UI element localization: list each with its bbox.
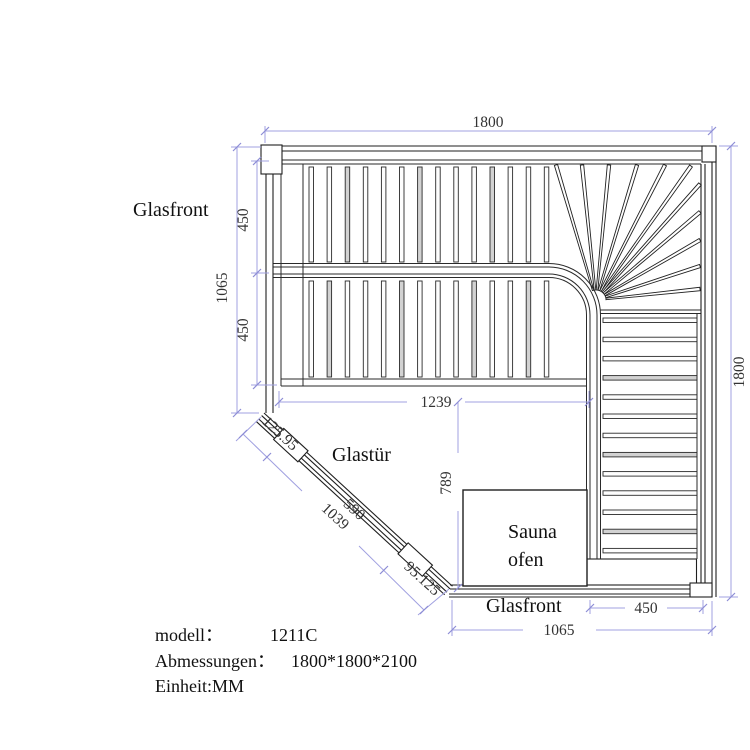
corner-fan-slats (554, 164, 701, 300)
bottom-right-corner-post (690, 583, 712, 597)
upper-bench-slats (309, 167, 549, 262)
dim-1239: 1239 (421, 394, 452, 411)
model-value: 1211C (270, 625, 317, 645)
left-glass-wall (266, 145, 273, 413)
right-wall (701, 146, 716, 597)
label-glasfront-bottom: Glasfront (486, 595, 562, 617)
top-left-corner-post (261, 145, 282, 174)
right-bench-end-board (587, 559, 697, 585)
label-sauna-oven-line2: ofen (508, 549, 544, 571)
unit-label: Einheit:MM (155, 676, 244, 696)
size-value: 1800*1800*2100 (291, 651, 417, 671)
sauna-floorplan-page: 1800 1800 1065 450 450 1239 789 125.95 5… (0, 0, 750, 750)
sauna-floorplan-drawing: 1800 1800 1065 450 450 1239 789 125.95 5… (0, 0, 750, 750)
model-info-block: modell： 1211C Abmessungen： 1800*1800*210… (155, 625, 417, 696)
model-label: modell： (155, 625, 223, 645)
top-right-corner-post (702, 146, 716, 162)
dim-bottom-1065: 1065 (544, 622, 575, 639)
lower-bench-slats (309, 281, 549, 377)
dim-bottom-450: 450 (634, 600, 658, 617)
dim-diag-125-95: 125.95 (259, 413, 302, 455)
dim-789: 789 (438, 471, 455, 495)
label-sauna-oven-line1: Sauna (508, 521, 557, 543)
dim-left-1065: 1065 (214, 272, 231, 303)
dim-right-1800: 1800 (731, 356, 748, 387)
dim-left-450-lower: 450 (235, 318, 252, 342)
dim-top-1800: 1800 (473, 114, 504, 131)
dim-left-450-upper: 450 (235, 208, 252, 232)
right-bench-slats (603, 318, 697, 553)
top-wall (264, 146, 716, 151)
label-glastuer: Glastür (332, 444, 391, 466)
size-label: Abmessungen： (155, 651, 275, 671)
label-glasfront-left: Glasfront (133, 199, 209, 221)
